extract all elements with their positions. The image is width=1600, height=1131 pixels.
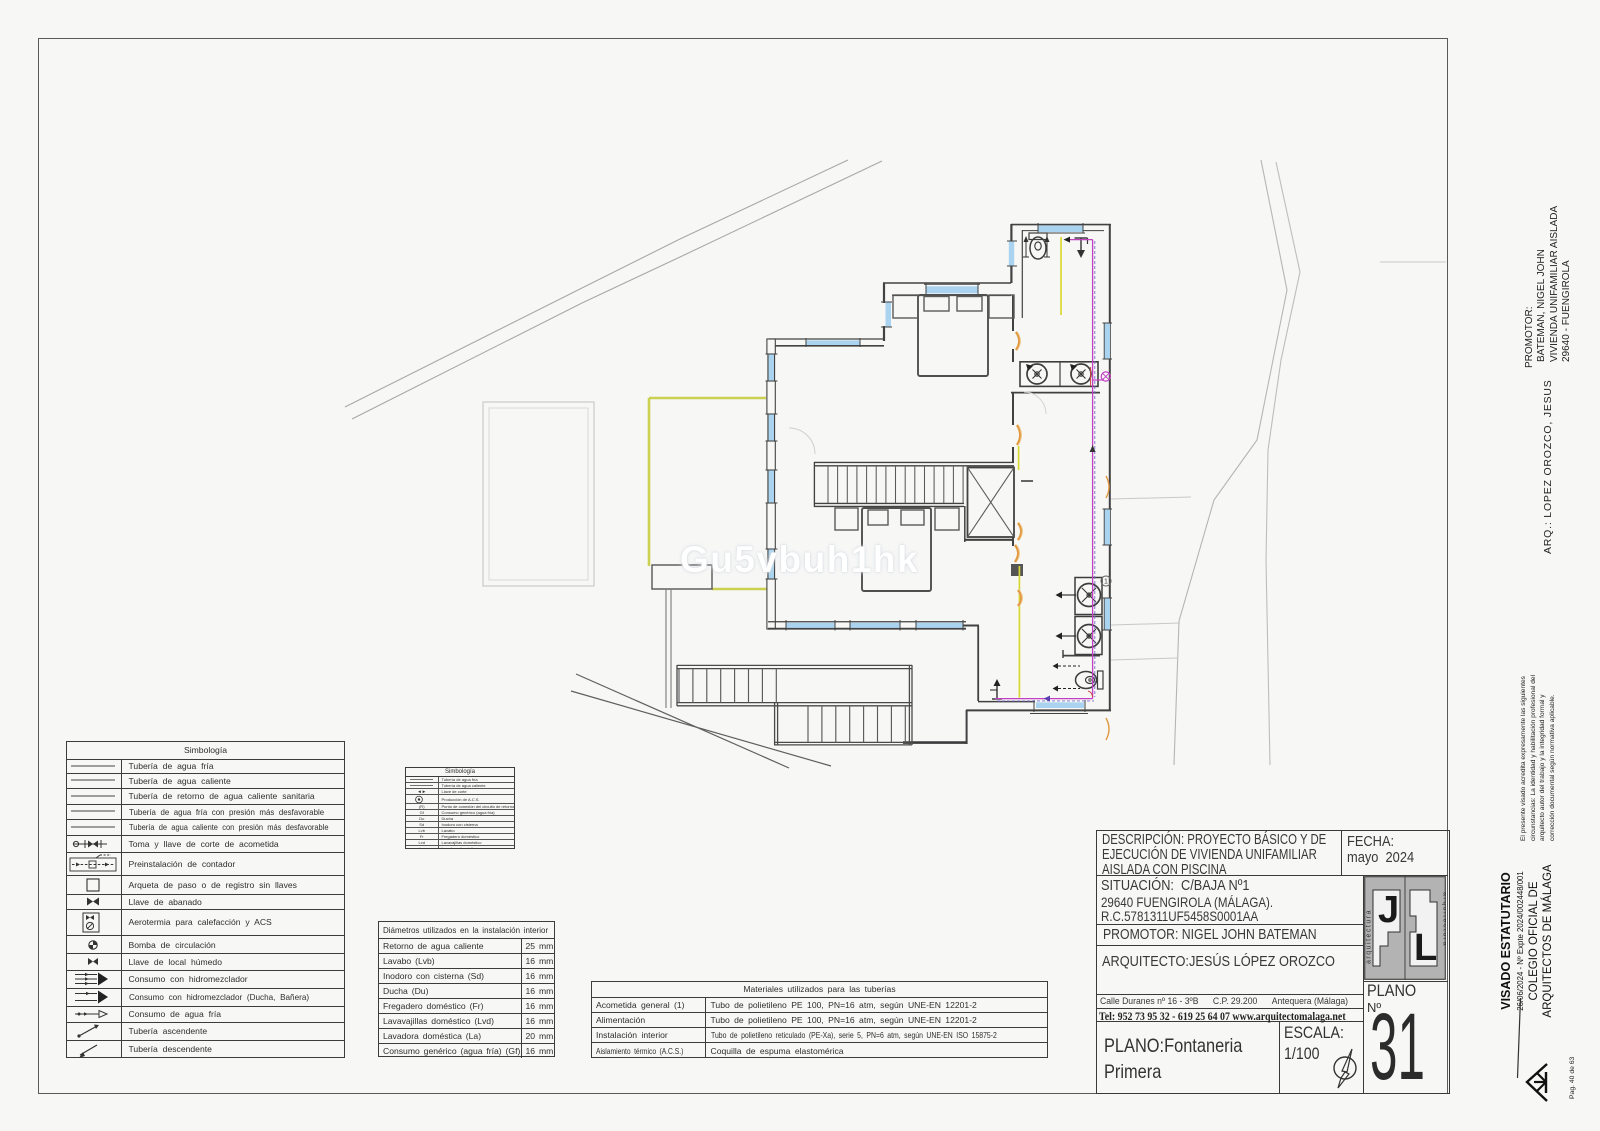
svg-text:J: J [1378,889,1399,931]
svg-text:L: L [1414,927,1437,969]
svg-text:arquitectura: arquitectura [1366,909,1373,964]
svg-text:1: 1 [1104,579,1108,586]
svg-text:arquitectura: arquitectura [1442,892,1447,947]
